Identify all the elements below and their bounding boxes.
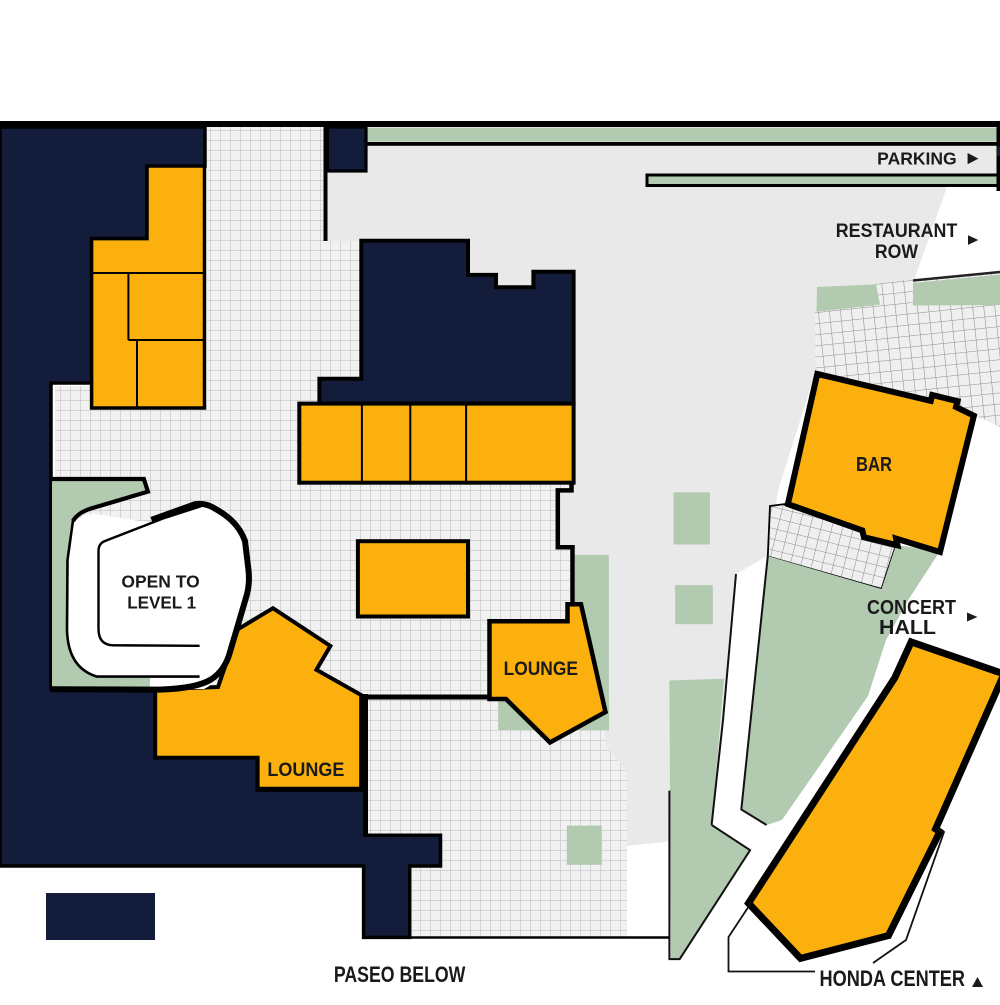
- svg-text:RESTAURANT: RESTAURANT: [836, 220, 958, 242]
- svg-text:LOUNGE: LOUNGE: [267, 759, 344, 781]
- svg-text:PASEO BELOW: PASEO BELOW: [334, 962, 466, 987]
- svg-text:LOUNGE: LOUNGE: [504, 658, 578, 680]
- svg-text:HONDA CENTER: HONDA CENTER: [820, 966, 966, 991]
- svg-text:HALL: HALL: [879, 617, 936, 639]
- svg-text:ROW: ROW: [875, 241, 919, 263]
- svg-text:CONCERT: CONCERT: [867, 596, 956, 619]
- svg-text:OPEN TO: OPEN TO: [121, 572, 199, 592]
- svg-text:BAR: BAR: [856, 453, 892, 476]
- svg-text:LEVEL 1: LEVEL 1: [127, 592, 196, 612]
- svg-text:PARKING: PARKING: [877, 148, 957, 168]
